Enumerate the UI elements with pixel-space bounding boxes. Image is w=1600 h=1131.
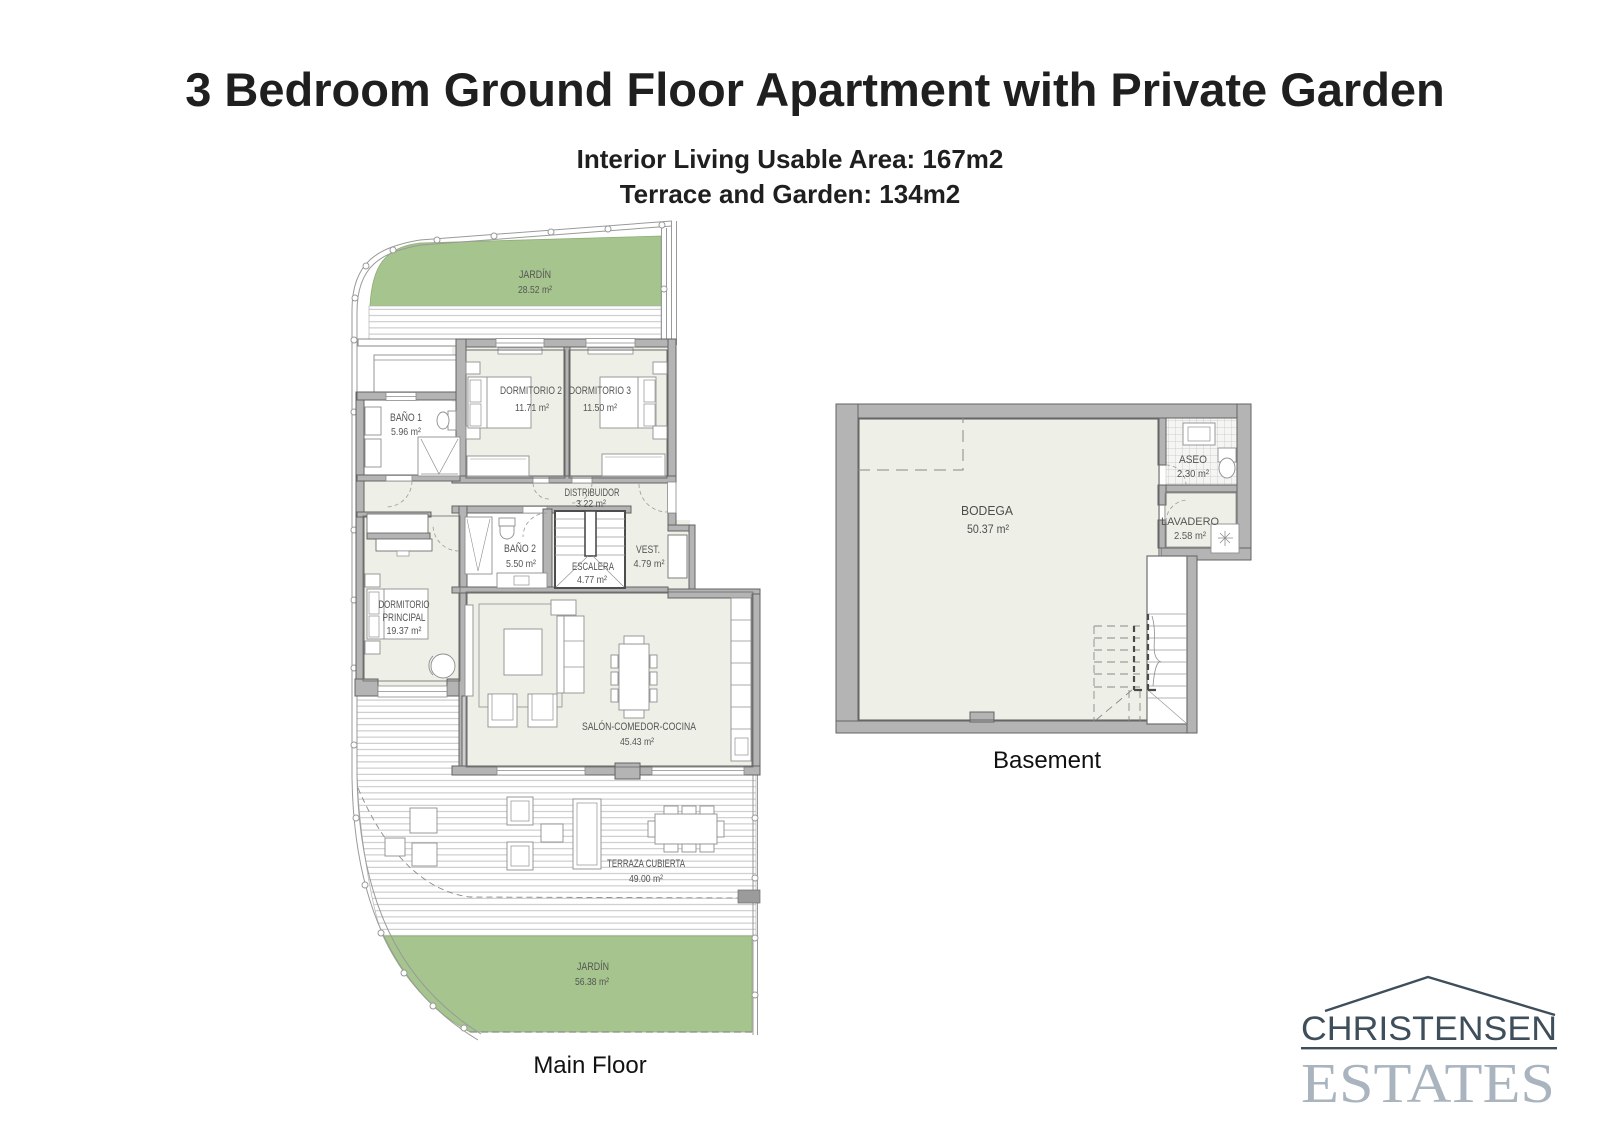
svg-text:3 Bedroom Ground Floor Apartme: 3 Bedroom Ground Floor Apartment with Pr… [185, 63, 1445, 116]
svg-text:Main Floor: Main Floor [533, 1052, 646, 1079]
svg-text:Basement: Basement [993, 747, 1101, 774]
svg-text:SALÓN-COMEDOR-COCINA: SALÓN-COMEDOR-COCINA [582, 720, 697, 733]
svg-text:DORMITORIO 2: DORMITORIO 2 [500, 385, 562, 397]
svg-text:Terrace and Garden: 134m2: Terrace and Garden: 134m2 [620, 179, 961, 209]
svg-text:DORMITORIO: DORMITORIO [379, 599, 430, 611]
svg-text:56.38 m²: 56.38 m² [575, 976, 609, 988]
svg-text:3.22 m²: 3.22 m² [576, 498, 606, 510]
svg-text:11.50 m²: 11.50 m² [583, 402, 617, 414]
svg-text:PRINCIPAL: PRINCIPAL [383, 612, 426, 624]
svg-text:4.77 m²: 4.77 m² [577, 574, 607, 586]
svg-text:Interior Living Usable Area: 1: Interior Living Usable Area: 167m2 [577, 144, 1004, 174]
svg-text:50.37 m²: 50.37 m² [967, 522, 1009, 536]
svg-text:LAVADERO: LAVADERO [1161, 516, 1219, 528]
svg-text:45.43 m²: 45.43 m² [620, 736, 654, 748]
svg-text:ESTATES: ESTATES [1301, 1053, 1555, 1115]
svg-text:BAÑO 1: BAÑO 1 [390, 411, 422, 424]
svg-text:28.52 m²: 28.52 m² [518, 284, 552, 296]
svg-text:5.50 m²: 5.50 m² [506, 558, 536, 570]
svg-text:19.37 m²: 19.37 m² [387, 625, 422, 637]
svg-text:BAÑO 2: BAÑO 2 [504, 542, 536, 555]
svg-text:VEST.: VEST. [636, 544, 660, 556]
svg-text:JARDÍN: JARDÍN [577, 960, 609, 973]
svg-text:5.96 m²: 5.96 m² [391, 426, 421, 438]
svg-text:DORMITORIO 3: DORMITORIO 3 [569, 385, 631, 397]
svg-text:2.30 m²: 2.30 m² [1177, 468, 1209, 480]
svg-text:TERRAZA CUBIERTA: TERRAZA CUBIERTA [607, 858, 685, 870]
svg-text:2.58 m²: 2.58 m² [1174, 530, 1206, 542]
svg-text:JARDÍN: JARDÍN [519, 268, 551, 281]
svg-text:BODEGA: BODEGA [961, 504, 1014, 518]
svg-text:ESCALERA: ESCALERA [572, 561, 614, 573]
svg-text:4.79 m²: 4.79 m² [634, 558, 665, 570]
svg-text:11.71 m²: 11.71 m² [515, 402, 549, 414]
svg-text:49.00 m²: 49.00 m² [629, 873, 663, 885]
svg-text:ASEO: ASEO [1179, 454, 1207, 466]
svg-text:CHRISTENSEN: CHRISTENSEN [1301, 1010, 1557, 1048]
